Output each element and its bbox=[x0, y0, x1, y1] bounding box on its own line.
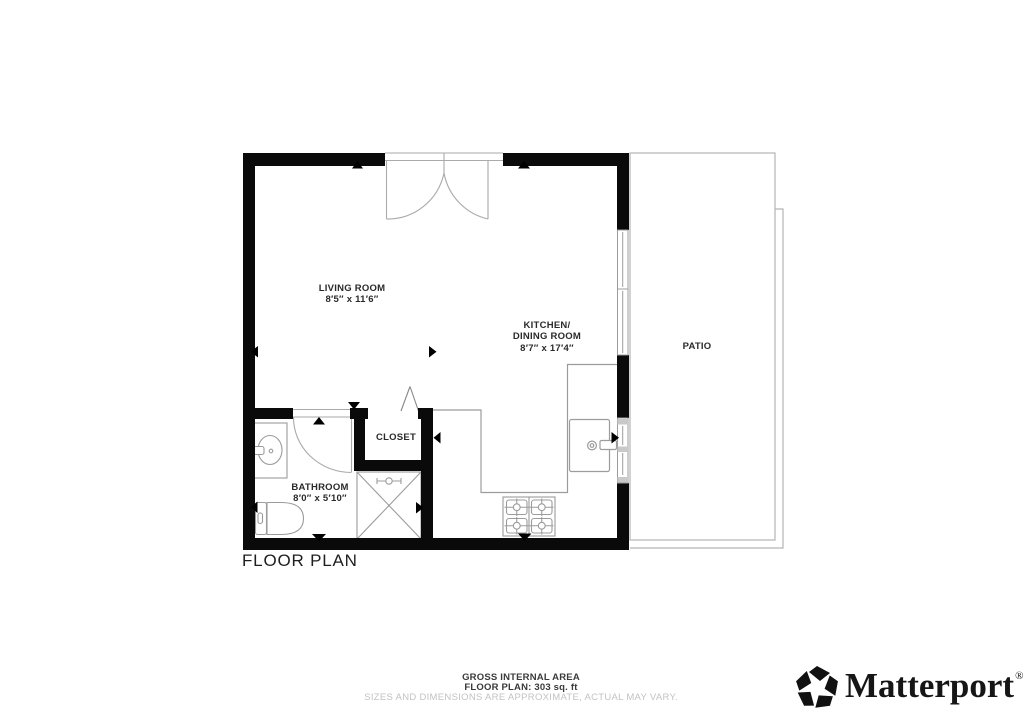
bathroom-door-swing-icon bbox=[293, 410, 352, 473]
room-dimensions: 8′7″ x 17′4″ bbox=[513, 343, 581, 354]
registered-trademark-symbol: ® bbox=[1015, 670, 1023, 682]
matterport-pinwheel-icon bbox=[793, 664, 841, 712]
kitchen-sink-icon bbox=[570, 420, 617, 472]
room-dimensions: 8′0″ x 5′10″ bbox=[291, 493, 348, 504]
matterport-wordmark: Matterport® bbox=[845, 668, 1023, 703]
room-label-patio: PATIO bbox=[683, 341, 712, 352]
footer-area-info: GROSS INTERNAL AREA FLOOR PLAN: 303 sq. … bbox=[364, 673, 678, 702]
room-name: KITCHEN/ bbox=[513, 320, 581, 331]
stove-icon bbox=[503, 497, 555, 536]
brand-name-text: Matterport bbox=[845, 666, 1014, 705]
dimensions-disclaimer: SIZES AND DIMENSIONS ARE APPROXIMATE, AC… bbox=[364, 693, 678, 703]
room-label-kitchen-dining: KITCHEN/ DINING ROOM 8′7″ x 17′4″ bbox=[513, 320, 581, 354]
shower-icon bbox=[357, 472, 421, 539]
room-name: PATIO bbox=[683, 341, 712, 352]
window bbox=[618, 230, 629, 355]
room-label-living: LIVING ROOM 8′5″ x 11′6″ bbox=[319, 283, 386, 306]
french-door-icon bbox=[385, 153, 503, 219]
room-dimensions: 8′5″ x 11′6″ bbox=[319, 294, 386, 305]
toilet-icon bbox=[256, 503, 304, 535]
room-name: CLOSET bbox=[376, 432, 416, 443]
room-label-bathroom: BATHROOM 8′0″ x 5′10″ bbox=[291, 482, 348, 505]
floor-plan-title: FLOOR PLAN bbox=[242, 551, 358, 571]
matterport-logo: Matterport® bbox=[791, 663, 1024, 718]
floor-plan-page: LIVING ROOM 8′5″ x 11′6″ KITCHEN/ DINING… bbox=[0, 0, 1024, 724]
room-name: BATHROOM bbox=[291, 482, 348, 493]
closet-door-icon bbox=[401, 387, 419, 412]
bathroom-sink-icon bbox=[254, 423, 288, 478]
sliding-window bbox=[618, 418, 629, 483]
room-name: LIVING ROOM bbox=[319, 283, 386, 294]
room-name: DINING ROOM bbox=[513, 331, 581, 342]
room-label-closet: CLOSET bbox=[376, 432, 416, 443]
floor-plan-canvas bbox=[0, 0, 1024, 724]
